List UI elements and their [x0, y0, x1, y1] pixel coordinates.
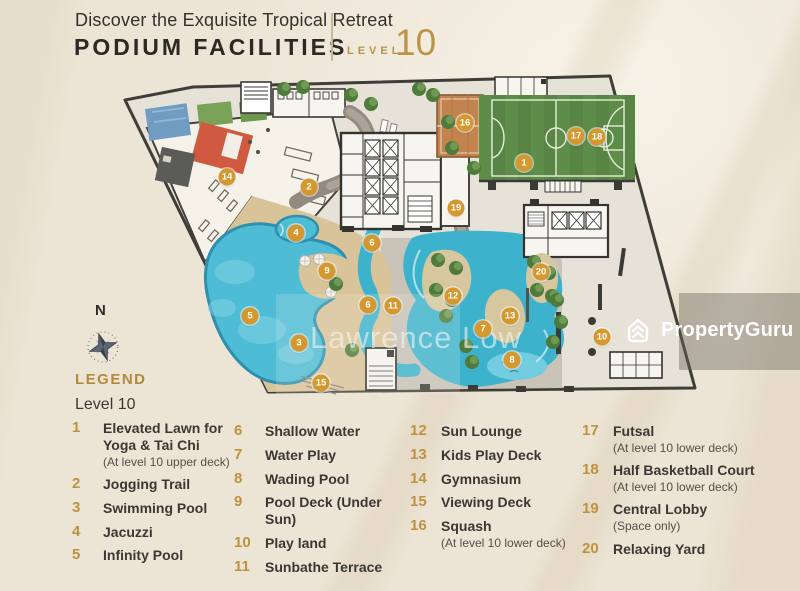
futsal-field	[479, 95, 635, 192]
agent-name-watermark: Lawrence Low	[310, 320, 522, 356]
propertyguru-house-icon	[622, 314, 654, 346]
secondary-core-building	[524, 199, 608, 257]
brochure-page: Discover the Exquisite Tropical Retreat …	[0, 0, 800, 591]
brand-watermark-text: PropertyGuru	[661, 319, 793, 342]
brand-watermark: PropertyGuru	[622, 314, 793, 346]
